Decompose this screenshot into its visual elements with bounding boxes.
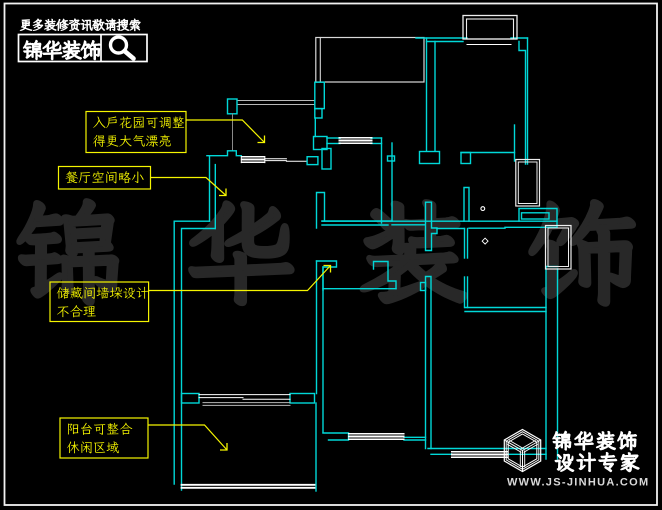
svg-text:WWW.JS-JINHUA.COM: WWW.JS-JINHUA.COM bbox=[507, 477, 649, 489]
